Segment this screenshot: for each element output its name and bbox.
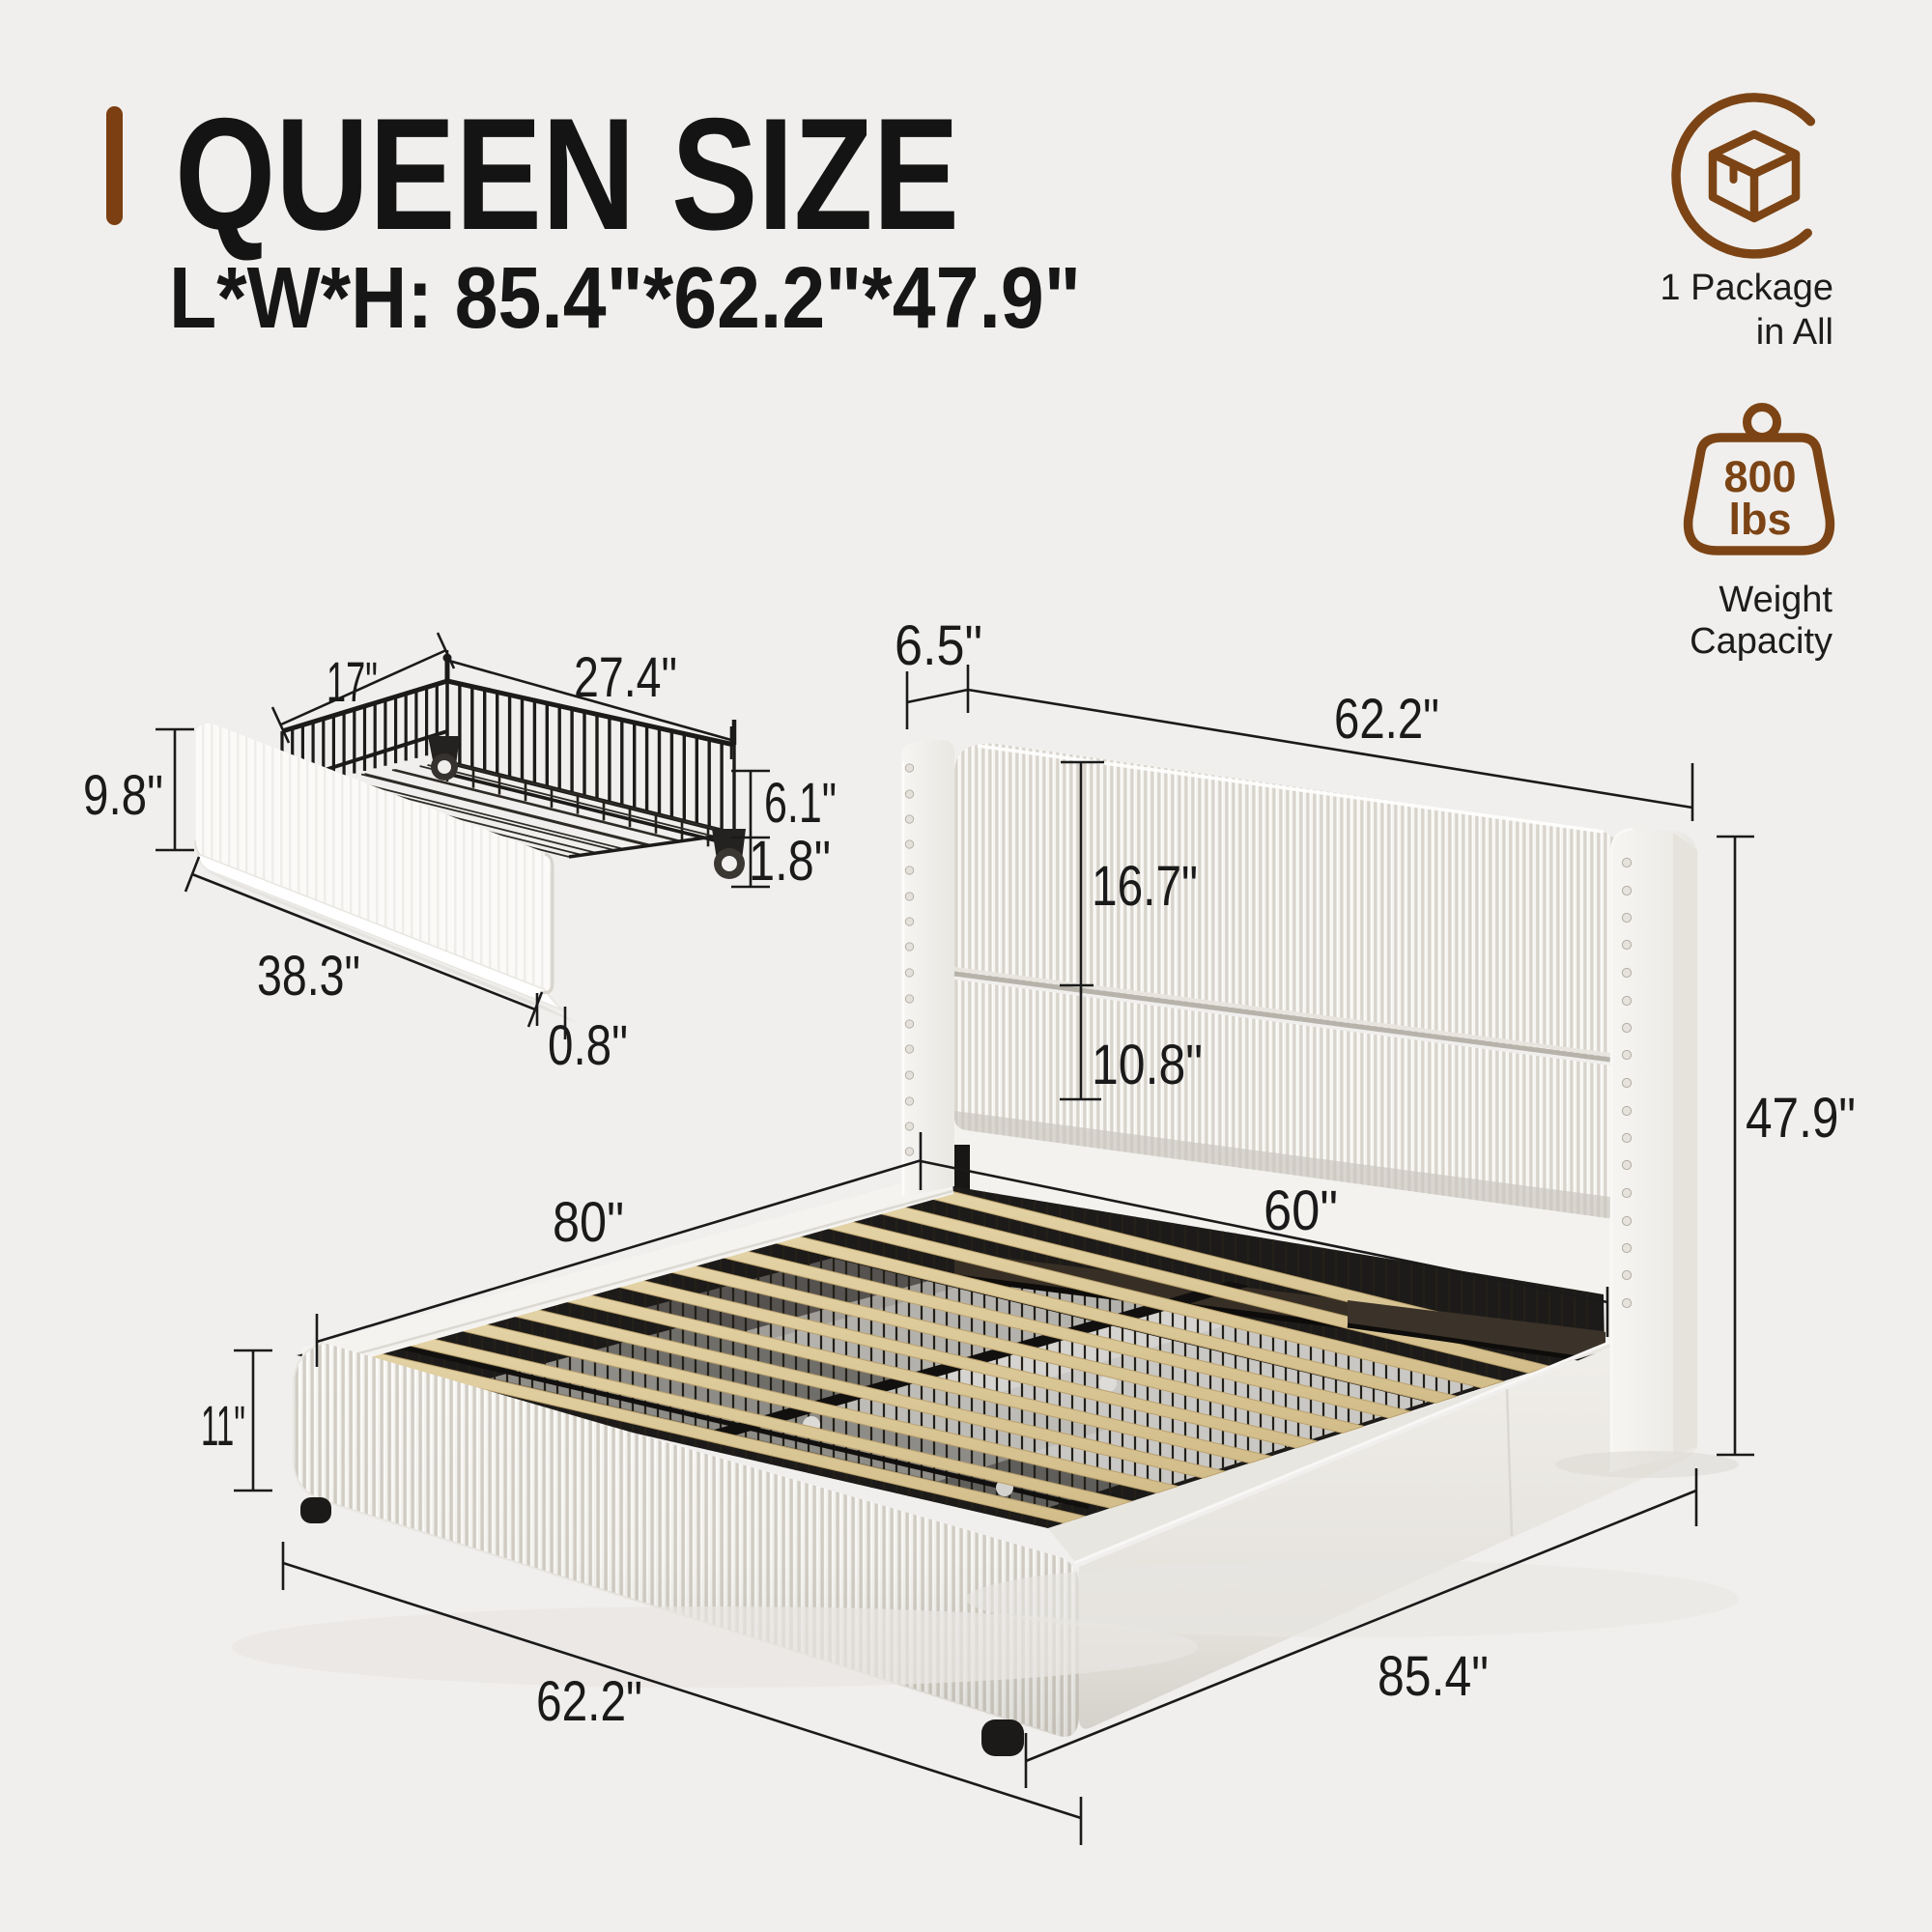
svg-text:6.5": 6.5" xyxy=(895,614,982,677)
svg-text:L*W*H: 85.4"*62.2"*47.9": L*W*H: 85.4"*62.2"*47.9" xyxy=(169,250,1081,347)
svg-text:60": 60" xyxy=(1264,1179,1338,1242)
svg-text:16.7": 16.7" xyxy=(1092,855,1198,918)
svg-text:27.4": 27.4" xyxy=(574,646,677,709)
svg-text:in All: in All xyxy=(1756,312,1833,353)
svg-text:Weight: Weight xyxy=(1719,580,1833,620)
svg-text:80": 80" xyxy=(553,1191,624,1254)
svg-text:10.8": 10.8" xyxy=(1092,1034,1203,1096)
svg-text:1 Package: 1 Package xyxy=(1660,268,1833,308)
svg-text:62.2": 62.2" xyxy=(1334,688,1439,751)
svg-text:1.8": 1.8" xyxy=(749,830,831,893)
svg-text:17": 17" xyxy=(327,651,378,714)
svg-text:6.1": 6.1" xyxy=(764,772,837,835)
svg-text:0.8": 0.8" xyxy=(548,1014,628,1077)
svg-text:85.4": 85.4" xyxy=(1378,1645,1489,1708)
svg-text:38.3": 38.3" xyxy=(257,945,360,1008)
svg-text:62.2": 62.2" xyxy=(536,1670,642,1733)
svg-text:47.9": 47.9" xyxy=(1746,1087,1856,1150)
svg-text:Capacity: Capacity xyxy=(1690,621,1833,662)
svg-text:QUEEN SIZE: QUEEN SIZE xyxy=(175,85,959,263)
svg-text:9.8": 9.8" xyxy=(83,764,163,827)
svg-text:11": 11" xyxy=(201,1395,245,1458)
svg-text:lbs: lbs xyxy=(1728,495,1791,544)
